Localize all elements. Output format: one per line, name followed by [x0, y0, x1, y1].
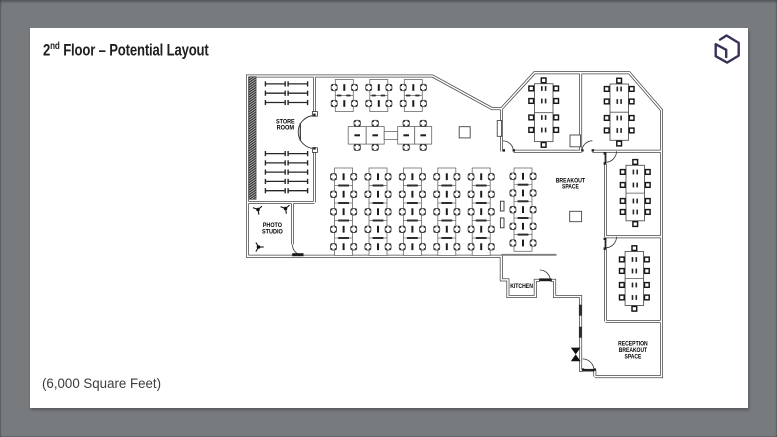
svg-text:ROOM: ROOM — [277, 124, 295, 131]
svg-text:STUDIO: STUDIO — [262, 228, 283, 235]
svg-text:KITCHEN: KITCHEN — [510, 283, 533, 290]
svg-text:SPACE: SPACE — [562, 184, 579, 191]
svg-text:SPACE: SPACE — [625, 354, 642, 361]
